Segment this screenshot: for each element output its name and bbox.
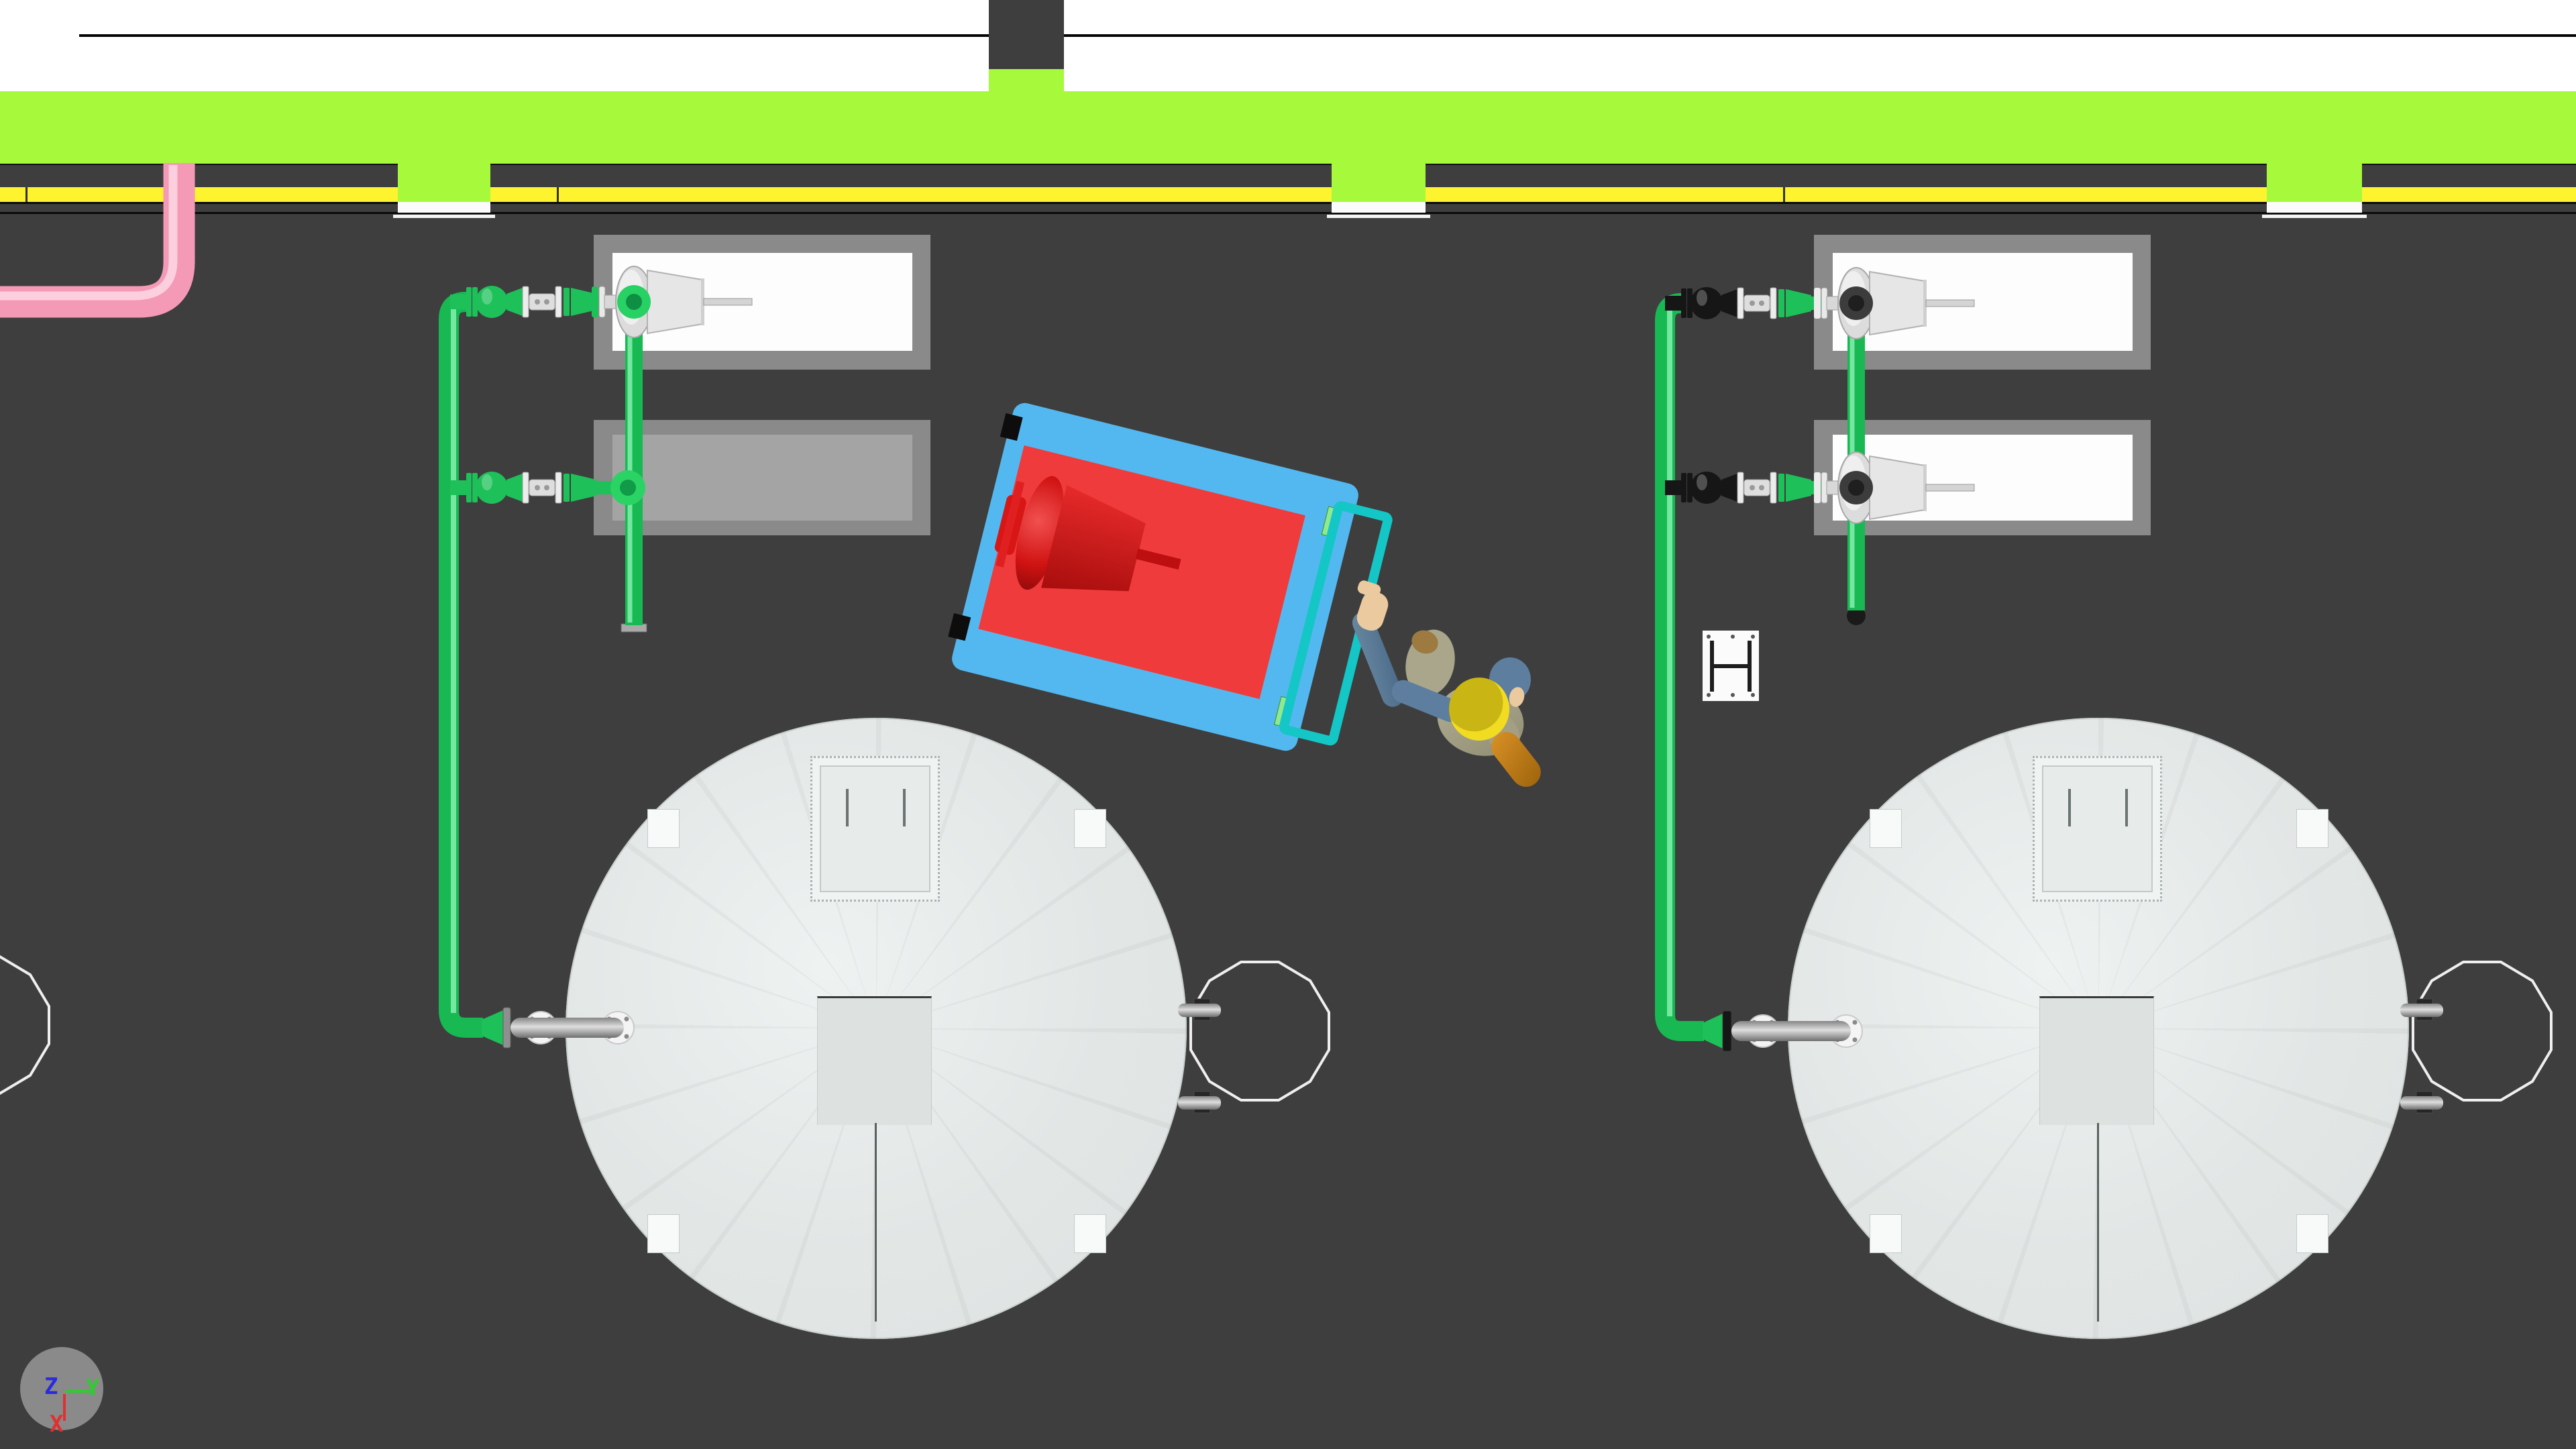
valve-train-left-1[interactable] (450, 286, 615, 318)
green-main-pipe-left[interactable] (449, 297, 634, 1048)
z-axis-label[interactable]: Z (44, 1375, 58, 1398)
valve-train-right-2[interactable] (1665, 472, 1830, 504)
x-axis-line (63, 1394, 66, 1421)
tank1-platform-nozzles[interactable] (1178, 999, 1221, 1113)
y-axis-label[interactable]: Y (86, 1377, 99, 1399)
tank2-platform-nozzles[interactable] (2400, 999, 2443, 1113)
worker-hard-hat[interactable] (1449, 678, 1509, 741)
tank2-inlet-pipe[interactable] (1731, 1021, 1851, 1041)
3d-viewport[interactable]: Z Y X (0, 0, 2576, 1449)
tank1-inlet-pipe[interactable] (511, 1018, 624, 1038)
axis-gizmo[interactable]: Z Y X (20, 1347, 103, 1430)
valve-train-left-2[interactable] (450, 472, 615, 504)
pink-pipe[interactable] (0, 163, 179, 302)
blind-flange-left-2[interactable] (610, 470, 645, 505)
pump-left-1[interactable] (592, 266, 752, 337)
x-axis-label[interactable]: X (50, 1413, 63, 1436)
pump-right-2[interactable] (1814, 452, 1974, 523)
pump-right-1[interactable] (1814, 268, 1974, 339)
valve-train-right-1[interactable] (1665, 287, 1830, 319)
green-main-pipe-right[interactable] (1665, 299, 1862, 1051)
